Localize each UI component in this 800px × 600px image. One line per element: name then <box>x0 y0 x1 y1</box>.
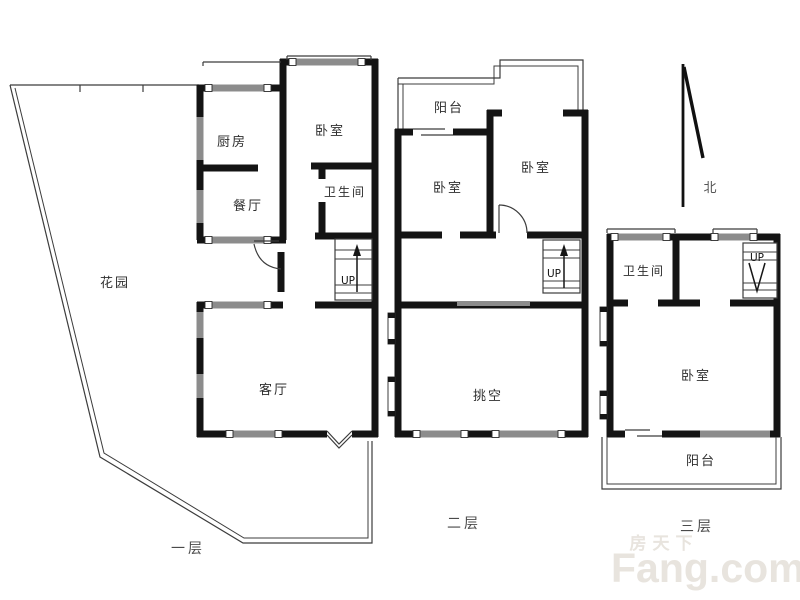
garden-boundary-inner <box>15 88 368 538</box>
floor2-label: 二层 <box>447 517 481 532</box>
floor1-label: 一层 <box>171 542 205 557</box>
floorplan-canvas: 房天下 Fang.com UP <box>0 0 800 600</box>
floor2-left-sills <box>388 313 395 416</box>
floorplan-image: 房天下 Fang.com UP <box>0 0 800 600</box>
room-label-balcony-f3: 阳台 <box>686 453 716 468</box>
room-label-bedroom-right-f2: 卧室 <box>521 160 551 175</box>
floor1-windows <box>200 62 358 434</box>
door-arc-bedroom-f2 <box>499 205 527 233</box>
floor2-stairs: UP <box>543 240 580 293</box>
floor2-balcony-door <box>413 129 453 135</box>
watermark-en: Fang.com <box>611 545 800 591</box>
floor3-stairs: UP <box>743 243 777 298</box>
north-arrow-blade <box>684 67 703 158</box>
room-label-kitchen: 厨房 <box>217 134 247 149</box>
watermark: 房天下 Fang.com <box>611 533 800 591</box>
room-label-garden: 花园 <box>100 275 130 290</box>
room-label-bedroom-f3: 卧室 <box>681 368 711 383</box>
north-label: 北 <box>703 180 716 195</box>
floor3-stairs-label: UP <box>750 252 764 264</box>
room-label-bathroom-f3: 卫生间 <box>623 264 665 278</box>
floor1-eave-line <box>203 62 281 66</box>
room-label-void: 挑空 <box>473 388 503 403</box>
floor2-stairs-label: UP <box>547 268 561 280</box>
floor-plan-1: UP 厨房 卧室 卫生间 餐厅 花园 客厅 一层 <box>10 56 378 557</box>
floor1-stairs-label: UP <box>341 275 355 287</box>
door-arc-entry <box>254 244 281 269</box>
floor3-balcony-door <box>625 430 662 436</box>
room-label-bedroom-f1: 卧室 <box>315 123 345 138</box>
north-compass: 北 <box>683 64 717 207</box>
floor3-left-sills <box>600 307 607 419</box>
garden-gate-v-door <box>327 431 352 448</box>
room-label-living: 客厅 <box>259 382 289 397</box>
floor-plan-2: UP 阳台 卧室 卧室 挑空 二层 <box>388 60 588 532</box>
floor3-top-sills <box>607 229 757 233</box>
floor1-stairs: UP <box>335 239 372 300</box>
room-label-dining: 餐厅 <box>233 198 263 213</box>
room-label-balcony-f2: 阳台 <box>434 100 464 115</box>
room-label-bedroom-left-f2: 卧室 <box>433 180 463 195</box>
room-label-bathroom-f1: 卫生间 <box>324 185 366 199</box>
garden-boundary-outer <box>10 85 372 543</box>
floor-plan-3: UP 卫生间 卧室 阳台 三层 <box>600 229 781 535</box>
floor3-label: 三层 <box>680 520 714 535</box>
